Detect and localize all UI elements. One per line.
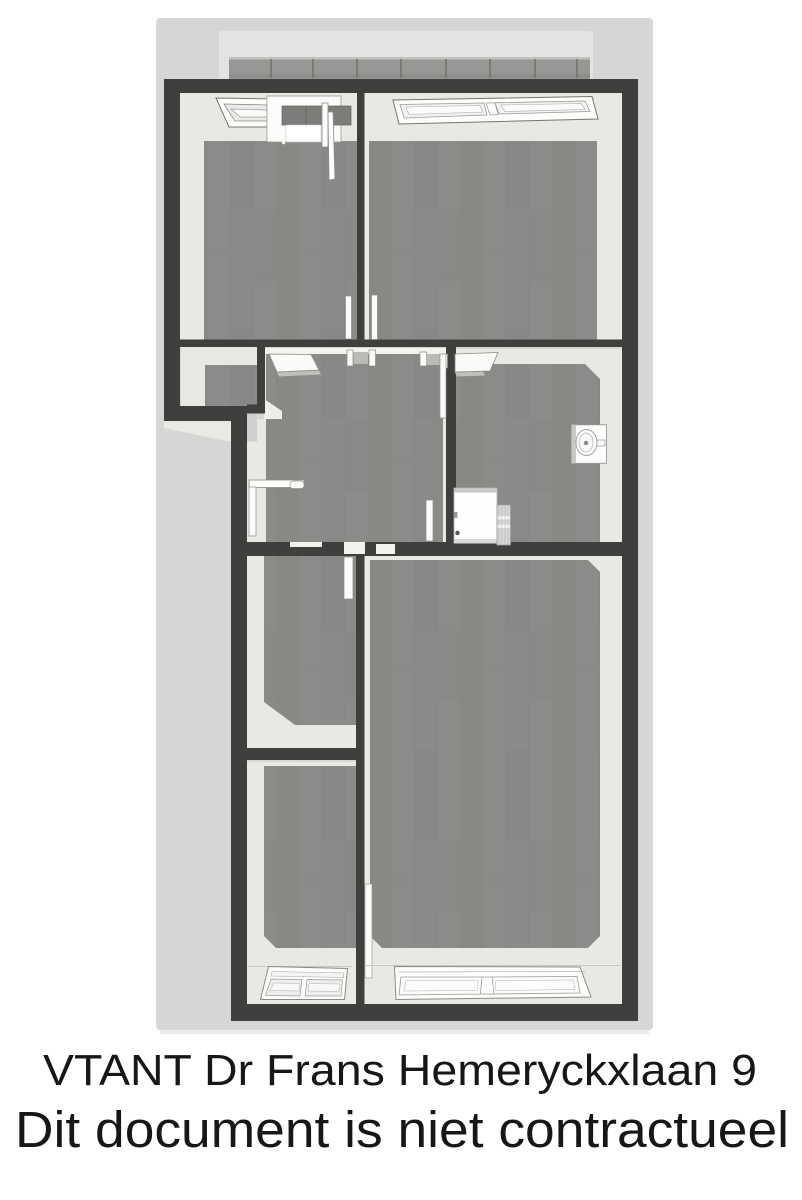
- svg-text:Dit document is niet contractu: Dit document is niet contractueel: [15, 1101, 789, 1158]
- svg-text:VTANT Dr Frans Hemeryckxlaan 9: VTANT Dr Frans Hemeryckxlaan 9: [43, 1046, 757, 1095]
